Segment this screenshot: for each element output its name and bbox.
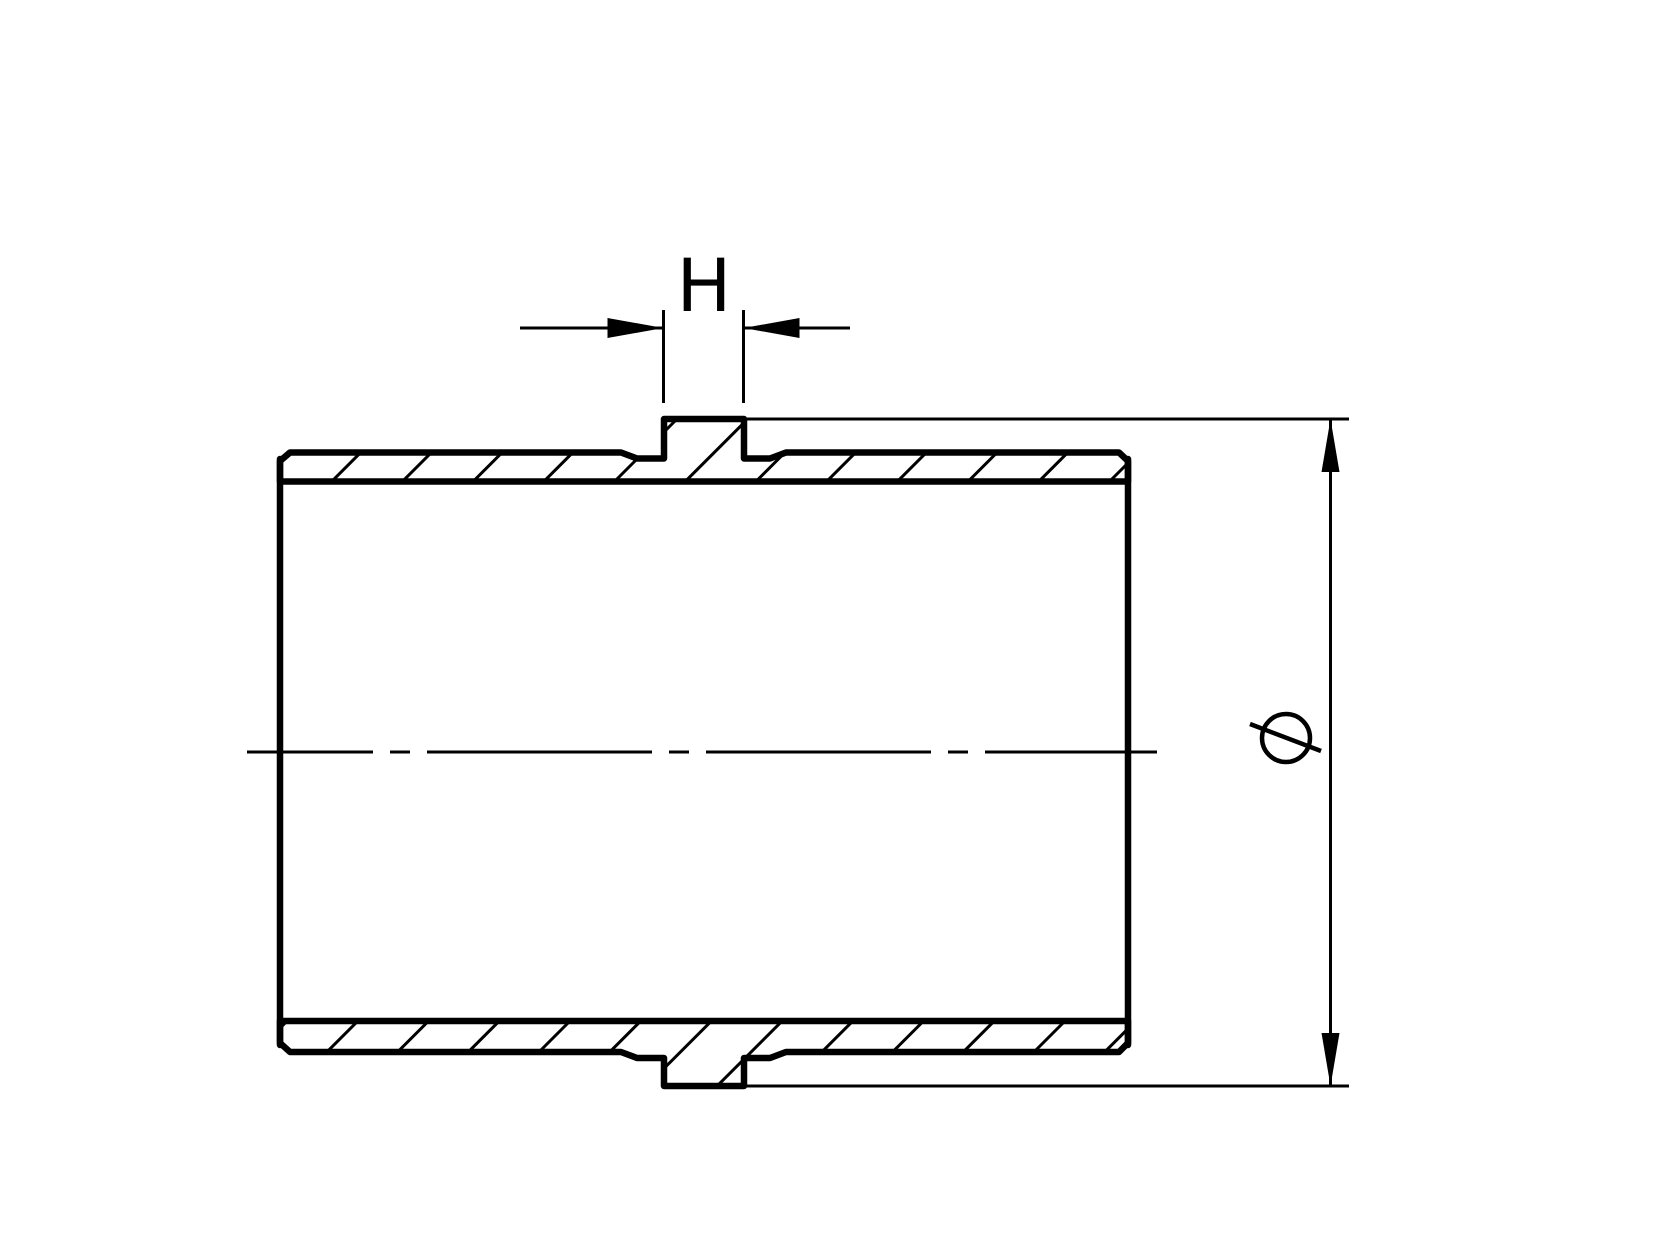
diameter-arrow-down-icon bbox=[1322, 1033, 1340, 1086]
bottom-wall-section bbox=[280, 1021, 1128, 1086]
h-arrow-right-icon bbox=[744, 318, 800, 338]
h-dimension-label: H bbox=[677, 250, 732, 323]
diameter-symbol-icon bbox=[1250, 714, 1321, 762]
part-section-view bbox=[0, 0, 1680, 1260]
h-arrow-left-icon bbox=[608, 318, 664, 338]
technical-drawing-page: H Ø bbox=[0, 0, 1680, 1260]
diameter-arrow-up-icon bbox=[1322, 419, 1340, 472]
top-wall-section bbox=[280, 419, 1128, 482]
